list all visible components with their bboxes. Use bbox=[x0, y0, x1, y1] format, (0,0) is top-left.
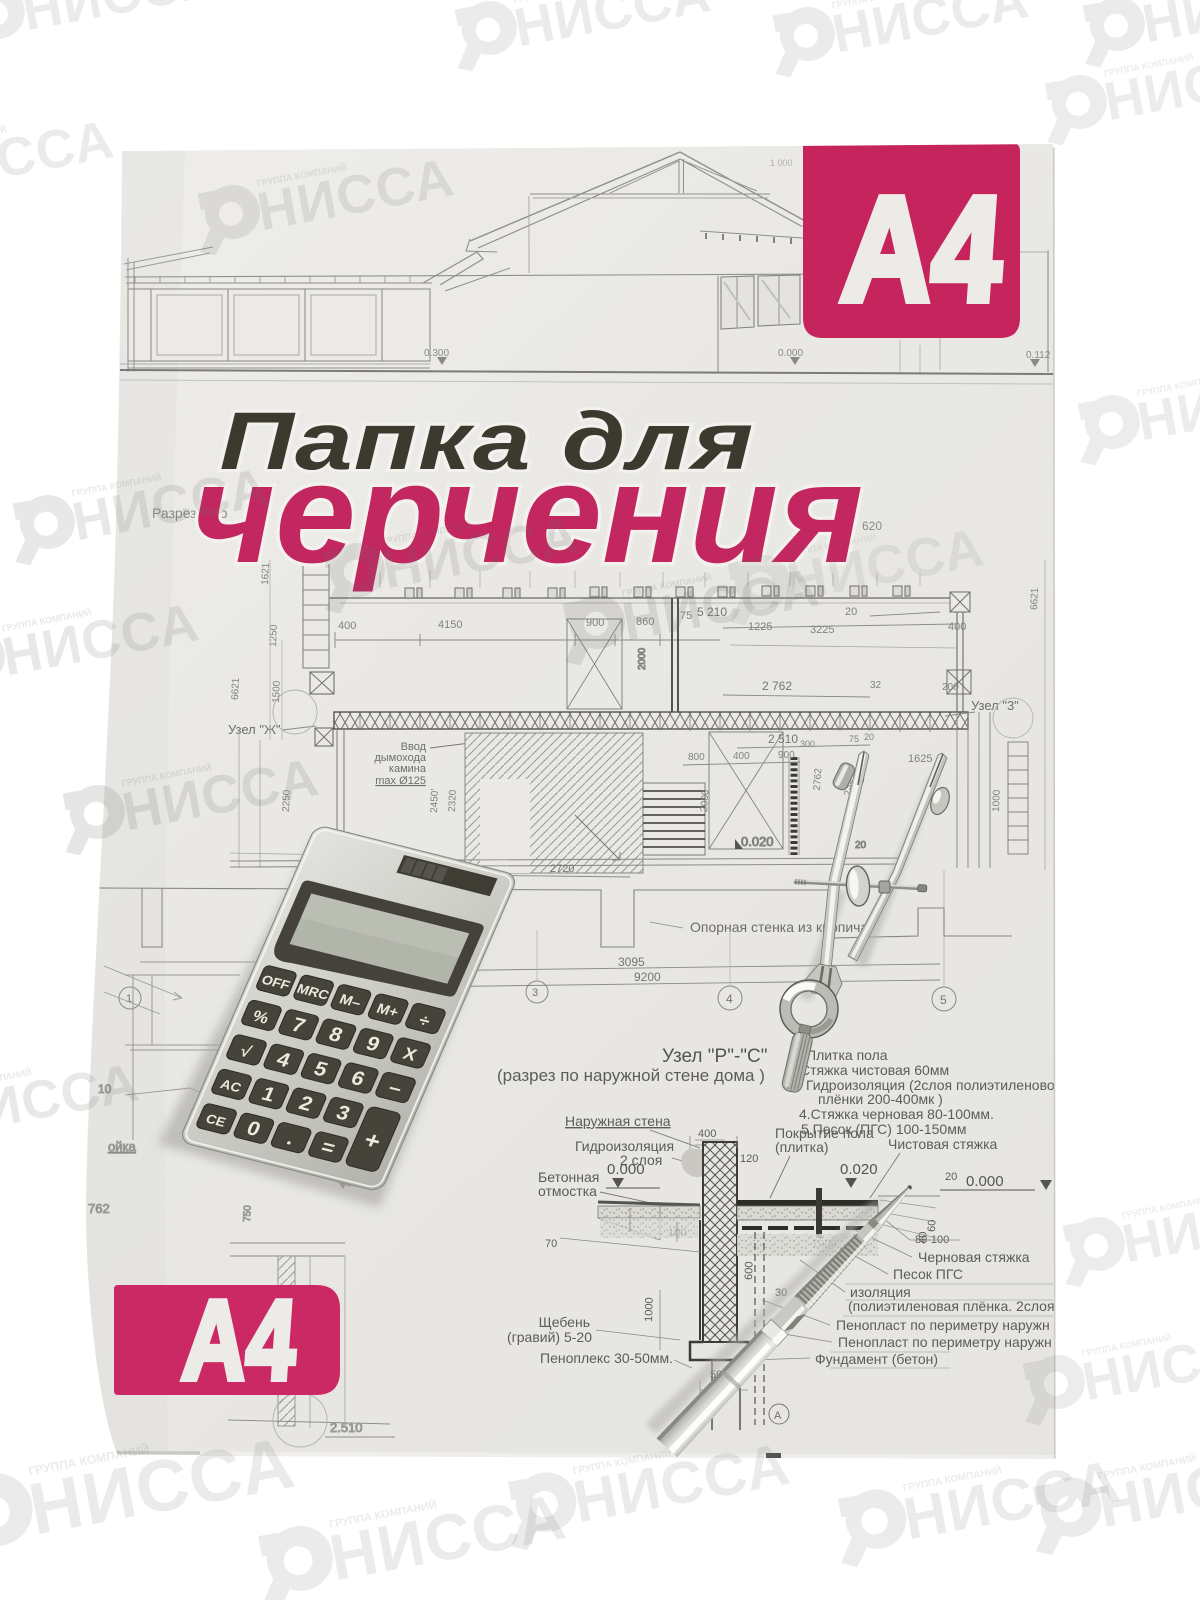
svg-text:Пеноплекс 30-50мм.: Пеноплекс 30-50мм. bbox=[540, 1350, 673, 1366]
svg-text:9200: 9200 bbox=[634, 970, 661, 984]
svg-text:400: 400 bbox=[338, 620, 356, 632]
svg-text:1000: 1000 bbox=[991, 789, 1003, 812]
svg-text:400: 400 bbox=[698, 1128, 716, 1140]
svg-text:Узел "3": Узел "3" bbox=[971, 698, 1019, 713]
svg-text:900: 900 bbox=[778, 750, 795, 761]
svg-text:4.Стяжка черновая 80-100мм.: 4.Стяжка черновая 80-100мм. bbox=[799, 1106, 994, 1122]
svg-text:Песок ПГС: Песок ПГС bbox=[893, 1266, 963, 1282]
svg-text:2000: 2000 bbox=[699, 789, 712, 812]
svg-text:4150: 4150 bbox=[438, 619, 462, 631]
svg-text:32: 32 bbox=[870, 680, 882, 691]
svg-text:0.020: 0.020 bbox=[840, 1161, 878, 1178]
svg-text:плёнки 200-400мк ): плёнки 200-400мк ) bbox=[818, 1091, 943, 1107]
svg-text:Чистовая стяжка: Чистовая стяжка bbox=[888, 1136, 998, 1152]
svg-text:Опорная стенка из кирпича: Опорная стенка из кирпича bbox=[690, 919, 868, 935]
svg-text:A: A bbox=[774, 1410, 782, 1422]
svg-text:(разрез по наружной стене дома: (разрез по наружной стене дома ) bbox=[497, 1066, 765, 1085]
svg-text:3225: 3225 bbox=[810, 624, 834, 636]
svg-text:20: 20 bbox=[855, 840, 867, 851]
svg-text:ойка: ойка bbox=[108, 1139, 136, 1154]
svg-text:2.510: 2.510 bbox=[330, 1420, 363, 1435]
svg-text:20: 20 bbox=[845, 606, 857, 618]
svg-text:1 000: 1 000 bbox=[770, 158, 793, 168]
svg-text:400: 400 bbox=[733, 751, 750, 762]
svg-text:2450': 2450' bbox=[429, 788, 441, 813]
svg-text:2 510: 2 510 bbox=[768, 732, 798, 746]
svg-text:(плитка): (плитка) bbox=[775, 1139, 829, 1155]
svg-text:0.000: 0.000 bbox=[607, 1161, 645, 1178]
svg-text:20: 20 bbox=[945, 1171, 957, 1183]
svg-text:отмостка: отмостка bbox=[538, 1183, 597, 1199]
svg-text:1625: 1625 bbox=[908, 753, 932, 765]
svg-text:A4: A4 bbox=[837, 167, 1007, 332]
svg-text:1500: 1500 bbox=[271, 680, 283, 703]
svg-text:75: 75 bbox=[849, 734, 859, 744]
svg-text:3095: 3095 bbox=[618, 955, 645, 969]
svg-text:камина: камина bbox=[389, 763, 427, 775]
svg-text:6621: 6621 bbox=[1029, 587, 1041, 610]
svg-text:(гравий) 5-20: (гравий) 5-20 bbox=[507, 1329, 592, 1345]
svg-text:A4: A4 bbox=[179, 1277, 301, 1404]
svg-text:0.000: 0.000 bbox=[966, 1173, 1004, 1190]
svg-text:Пенопласт по периметру наружн: Пенопласт по периметру наружн bbox=[838, 1334, 1052, 1350]
svg-text:0.300: 0.300 bbox=[424, 348, 449, 359]
svg-text:Узел "Ж": Узел "Ж" bbox=[228, 722, 281, 737]
svg-text:70: 70 bbox=[545, 1238, 557, 1250]
svg-text:750: 750 bbox=[242, 1205, 254, 1222]
svg-text:2 762: 2 762 bbox=[762, 679, 792, 693]
svg-text:800: 800 bbox=[688, 752, 705, 763]
svg-text:1: 1 bbox=[126, 993, 132, 1005]
svg-text:2320: 2320 bbox=[447, 789, 459, 812]
svg-text:120: 120 bbox=[740, 1153, 758, 1165]
svg-text:2000: 2000 bbox=[637, 647, 648, 670]
svg-text:620: 620 bbox=[862, 519, 882, 533]
svg-text:762: 762 bbox=[88, 1201, 110, 1216]
svg-text:3: 3 bbox=[532, 987, 538, 999]
svg-text:Стяжка чистовая 60мм: Стяжка чистовая 60мм bbox=[800, 1062, 949, 1078]
svg-text:300: 300 bbox=[800, 739, 815, 749]
svg-text:2762: 2762 bbox=[812, 768, 825, 791]
svg-text:Фундамент (бетон): Фундамент (бетон) bbox=[815, 1351, 938, 1367]
svg-text:600: 600 bbox=[743, 1261, 756, 1280]
svg-text:0.112: 0.112 bbox=[1026, 350, 1051, 361]
svg-text:4: 4 bbox=[726, 992, 733, 1006]
svg-text:6621: 6621 bbox=[230, 677, 242, 700]
svg-text:2720: 2720 bbox=[550, 863, 574, 875]
svg-text:5: 5 bbox=[940, 993, 947, 1007]
svg-text:0.000: 0.000 bbox=[778, 348, 803, 359]
svg-text:Узел "Р"-"С": Узел "Р"-"С" bbox=[662, 1046, 768, 1067]
svg-text:Наружная стена: Наружная стена bbox=[565, 1113, 671, 1129]
svg-text:Пенопласт по периметру наружн: Пенопласт по периметру наружн bbox=[836, 1317, 1050, 1333]
svg-text:Щебень: Щебень bbox=[539, 1314, 590, 1330]
svg-text:max Ø125: max Ø125 bbox=[375, 775, 426, 787]
svg-text:Черновая стяжка: Черновая стяжка bbox=[918, 1249, 1030, 1265]
svg-text:20: 20 bbox=[864, 732, 874, 742]
svg-text:1000: 1000 bbox=[643, 1297, 656, 1322]
svg-text:Плитка пола: Плитка пола bbox=[806, 1047, 888, 1063]
svg-text:0.020: 0.020 bbox=[741, 834, 774, 849]
svg-text:200: 200 bbox=[942, 682, 959, 693]
